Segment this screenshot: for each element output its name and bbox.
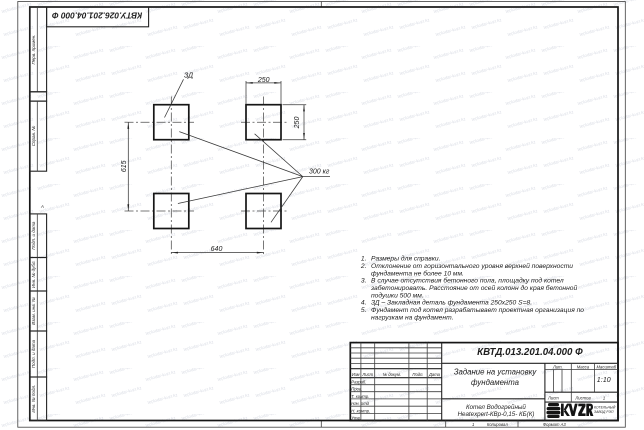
svg-text:Подп.: Подп.: [412, 372, 423, 377]
svg-text:Т. контр.: Т. контр.: [351, 394, 369, 399]
svg-text:КВТД.013.201.04.000 Ф: КВТД.013.201.04.000 Ф: [477, 347, 583, 358]
svg-text:ЗАВОД РЭП: ЗАВОД РЭП: [594, 410, 614, 414]
svg-text:Нач. отд: Нач. отд: [351, 401, 369, 406]
svg-text:забетонировать. Расстояние от: забетонировать. Расстояние от осей колон…: [370, 284, 578, 292]
svg-text:Лист: Лист: [547, 395, 559, 400]
svg-text:Пров.: Пров.: [351, 387, 362, 392]
svg-text:фундамента: фундамента: [471, 378, 520, 387]
svg-text:250: 250: [294, 117, 301, 130]
svg-text:Задание на установку: Задание на установку: [454, 367, 538, 376]
svg-text:640: 640: [211, 246, 223, 253]
svg-text:Инв. № подл.: Инв. № подл.: [31, 385, 36, 413]
svg-text:Справ. №: Справ. №: [31, 126, 36, 147]
svg-text:615: 615: [121, 160, 128, 172]
svg-text:Утв.: Утв.: [351, 415, 361, 420]
svg-text:250: 250: [257, 77, 270, 84]
svg-text:Фундамент под котел разрабатыв: Фундамент под котел разрабатывает проект…: [371, 306, 584, 314]
svg-text:5.: 5.: [361, 307, 367, 314]
svg-text:Дата: Дата: [428, 372, 441, 377]
svg-text:Копировал: Копировал: [487, 422, 508, 427]
svg-text:В случае отсутствия бетонного: В случае отсутствия бетонного пола, площ…: [371, 277, 564, 285]
svg-text:Перв. примен.: Перв. примен.: [31, 35, 36, 65]
svg-text:3.: 3.: [361, 278, 367, 285]
svg-text:1:10: 1:10: [597, 377, 611, 384]
svg-text:ЗД – Закладная деталь фундамен: ЗД – Закладная деталь фундамента 250х250…: [371, 299, 532, 307]
svg-text:Масса: Масса: [577, 364, 590, 369]
svg-text:Лит.: Лит.: [552, 364, 563, 369]
svg-text:А: А: [40, 204, 44, 209]
svg-text:Подп. и дата: Подп. и дата: [31, 221, 36, 250]
svg-text:Котел Водогрейный: Котел Водогрейный: [466, 404, 526, 411]
svg-text:Подп. и дата: Подп. и дата: [31, 339, 36, 368]
svg-text:Взам. инв. №: Взам. инв. №: [31, 297, 36, 325]
svg-text:300 кг: 300 кг: [309, 168, 330, 175]
svg-text:Heatexpert-КВр-0,15- КБ(К): Heatexpert-КВр-0,15- КБ(К): [458, 411, 535, 418]
svg-text:Изм: Изм: [352, 372, 360, 377]
svg-text:Листов: Листов: [574, 395, 591, 400]
svg-text:КОТЕЛЬНЫЙ: КОТЕЛЬНЫЙ: [594, 405, 616, 409]
svg-text:Разраб.: Разраб.: [351, 380, 366, 385]
svg-text:фундамента не более 10 мм.: фундамента не более 10 мм.: [371, 269, 464, 277]
svg-text:Инв. № дубл.: Инв. № дубл.: [31, 260, 36, 288]
svg-text:1: 1: [603, 395, 605, 400]
svg-text:Отклонение от горизонтального: Отклонение от горизонтального уровня вер…: [371, 262, 573, 270]
svg-text:нагрузкам на фундамент.: нагрузкам на фундамент.: [371, 313, 454, 321]
svg-text:1: 1: [472, 422, 474, 427]
svg-text:подушки 500 мм.: подушки 500 мм.: [371, 291, 424, 299]
svg-text:Размеры для справки.: Размеры для справки.: [371, 255, 441, 263]
svg-text:ЗД: ЗД: [184, 73, 193, 80]
svg-text:№ докум.: № докум.: [383, 372, 401, 377]
svg-text:1.: 1.: [361, 256, 367, 263]
svg-text:КВТУ.026.201.04.000 Ф: КВТУ.026.201.04.000 Ф: [52, 11, 143, 21]
svg-text:Масштаб: Масштаб: [597, 364, 617, 369]
svg-text:Лист: Лист: [361, 372, 373, 377]
svg-text:4.: 4.: [361, 300, 367, 307]
svg-text:Н. контр.: Н. контр.: [351, 408, 370, 413]
svg-text:Формат А3: Формат А3: [543, 422, 567, 427]
svg-text:2.: 2.: [360, 263, 367, 270]
